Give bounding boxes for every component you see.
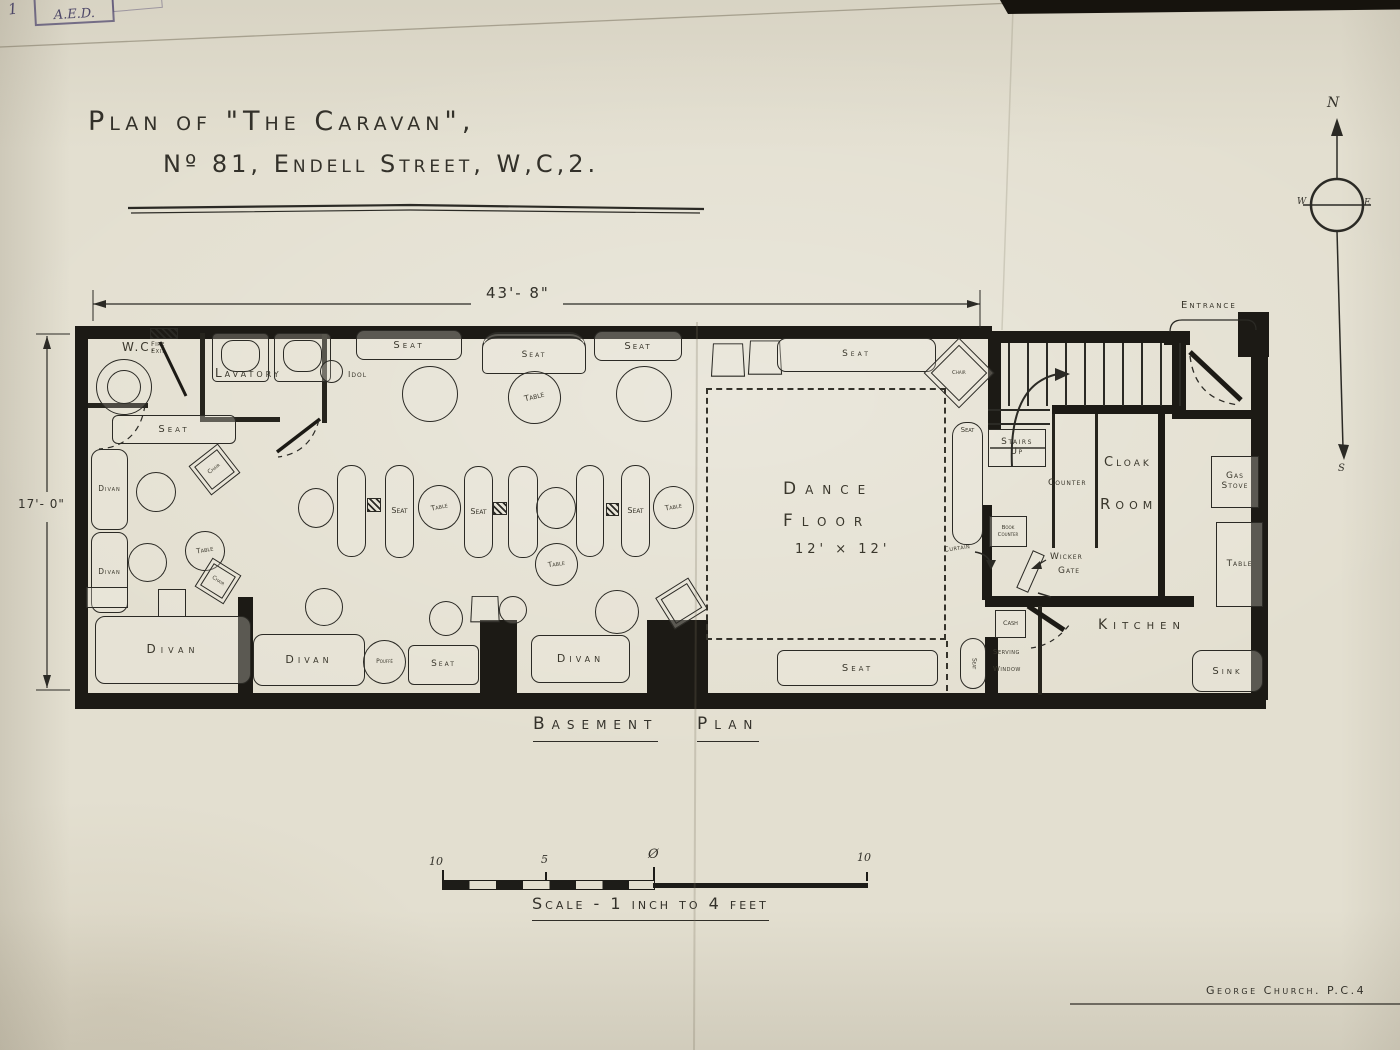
table [298, 488, 334, 528]
dance-floor-label: Floor [783, 512, 871, 531]
wall [1158, 413, 1165, 599]
wall [75, 693, 1266, 709]
table: Table [414, 481, 465, 534]
table [616, 366, 672, 422]
lavatory-label: Lavatory [215, 367, 282, 380]
seat: Seat [777, 338, 936, 372]
fire-exit-hatch [150, 328, 178, 339]
basin-inner [283, 340, 322, 372]
fire-exit-label: Fire Exit [151, 341, 165, 355]
bench: Seat [621, 465, 650, 557]
idol-label: Idol [348, 371, 367, 380]
seat: Seat [594, 331, 682, 361]
table [429, 601, 463, 636]
stool [158, 589, 186, 617]
seat-small: Seat [960, 638, 986, 689]
divan: Divan [253, 634, 365, 686]
scale-tick-label-left: 10 [429, 855, 443, 868]
scanned-floor-plan: 1 A.E.D. Plan of "The Caravan", Nº 81, E… [0, 0, 1400, 1050]
partition [1038, 606, 1042, 695]
wicker-gate-label: Wicker [1050, 553, 1083, 563]
serving-window-label: Window [993, 666, 1021, 674]
room-label: Room [1100, 496, 1157, 513]
hatch-square [367, 498, 381, 512]
stairs-treads-lower [988, 409, 1050, 431]
kitchen-label: Kitchen [1098, 618, 1186, 633]
scale-tick [545, 872, 547, 881]
wall [988, 331, 1188, 343]
hatch-square [493, 502, 507, 515]
wall [647, 620, 708, 695]
bench: Seat [464, 466, 493, 558]
dance-floor-label: Dance [783, 480, 874, 499]
stairs-treads [1008, 343, 1182, 406]
chair-label: Chair [952, 370, 966, 376]
scale-tick-label-five: 5 [541, 853, 548, 866]
curtain-line [946, 641, 948, 691]
wall [75, 326, 88, 706]
cloak-label: Cloak [1104, 456, 1152, 470]
wall [1052, 405, 1185, 414]
dance-floor-size: 12' × 12' [795, 543, 890, 557]
bench: Seat [952, 422, 983, 545]
seat: Seat [356, 330, 462, 360]
sink: Sink [1192, 650, 1263, 692]
bench [337, 465, 366, 557]
kitchen-table: Table [1216, 522, 1263, 607]
table [499, 596, 527, 624]
scale-tick [866, 872, 868, 881]
gas-stove: Gas Stove [1211, 456, 1259, 508]
caption-basement: Basement [533, 714, 658, 742]
scale-tick-label-zero: Ø [648, 847, 659, 862]
scale-bar-segmented [442, 880, 655, 890]
entrance-label: Entrance [1181, 300, 1237, 311]
scale-tick [442, 870, 444, 881]
signature: George Church. P.C.4 [1206, 984, 1366, 997]
stool [470, 596, 499, 622]
wicker-gate-label: Gate [1058, 567, 1080, 577]
divan: Divan [95, 616, 251, 684]
floor-plan: W.C.Fire ExitLavatoryIdolSeatSeatSeatTab… [0, 0, 1400, 1050]
wall [480, 620, 517, 695]
bench: Seat [385, 465, 414, 558]
stairs-up-box: Stairs Up [988, 429, 1046, 467]
table: Table [502, 365, 566, 429]
bench [576, 465, 604, 557]
seat: Seat [408, 645, 479, 685]
partition [200, 333, 205, 421]
wall [1238, 312, 1269, 357]
scale-caption: Scale - 1 inch to 4 feet [532, 894, 769, 921]
wicker-gate-leaf [1016, 550, 1045, 593]
table [595, 590, 639, 634]
table [536, 487, 576, 529]
canopy-seat: Seat [482, 332, 586, 374]
seat: Seat [112, 415, 236, 444]
toilet [96, 359, 152, 415]
divan: Divan [91, 449, 128, 530]
scale-tick [653, 867, 655, 881]
divan: Divan [531, 635, 630, 683]
seat: Seat [777, 650, 938, 686]
table: Table [650, 483, 698, 532]
table: Table [532, 540, 581, 589]
cash-box: Cash [995, 610, 1026, 638]
caption-plan: Plan [697, 714, 759, 742]
wall [1251, 340, 1268, 700]
table [402, 366, 458, 422]
scale-bar-solid [653, 883, 868, 888]
hatch-square [606, 503, 619, 516]
toilet-inner [107, 370, 141, 404]
seat-block [86, 587, 128, 608]
counter-label: Counter [1048, 479, 1087, 489]
book-counter: Book Counter [989, 516, 1027, 547]
serving-window-label: Serving [993, 649, 1020, 657]
stool [711, 343, 745, 376]
table [136, 472, 176, 512]
table [305, 588, 343, 626]
idol-circle [320, 360, 343, 383]
curtain-label: Curtain [944, 543, 971, 554]
pouffe: Pouffé [363, 640, 406, 684]
wall [1180, 410, 1252, 419]
chair: Chair [189, 444, 241, 496]
partition [1095, 414, 1098, 548]
bench [508, 466, 538, 558]
table [128, 543, 167, 582]
scale-tick-label-right: 10 [857, 851, 871, 864]
